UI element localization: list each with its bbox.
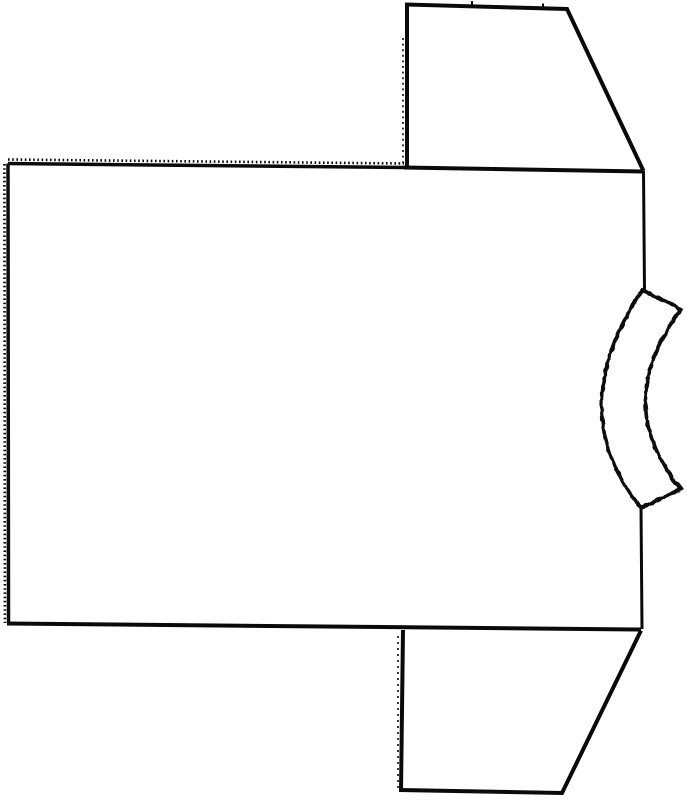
body-left-edge-pinking [4, 164, 5, 623]
body-bottom-edge [7, 624, 641, 630]
top-sleeve-outline [407, 5, 644, 172]
pattern-sheet [0, 0, 687, 800]
neckband-strip [602, 290, 681, 508]
shoulder-seam [404, 168, 643, 172]
body-right-edge-lower [641, 506, 642, 629]
body-right-edge-upper [644, 171, 645, 290]
tshirt-pattern-drawing [0, 0, 687, 800]
bottom-sleeve-outline [401, 630, 641, 793]
body-left-edge [8, 164, 9, 624]
pattern-shape-layer [4, 1, 681, 793]
